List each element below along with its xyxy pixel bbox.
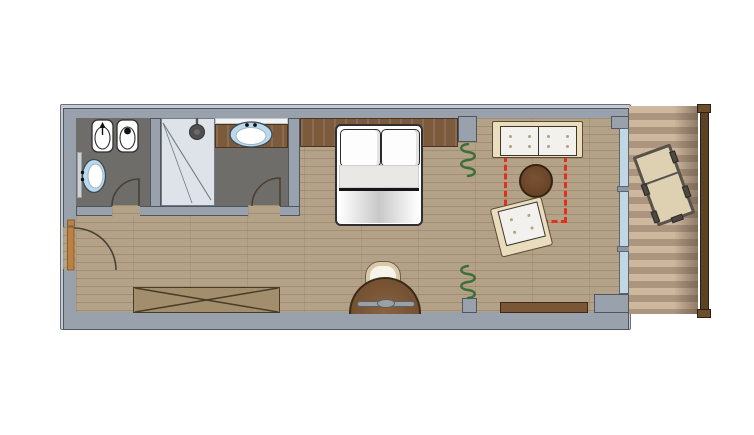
wall-corner-bottom-right [594, 294, 629, 313]
shower-cabin [161, 118, 215, 206]
coffee-table [519, 164, 553, 198]
sofa-cushion-right [538, 126, 577, 156]
vanity-counter [215, 124, 288, 148]
armchair-cushion [497, 201, 545, 246]
lounger-backrest-line [645, 172, 678, 186]
railing-post-top [697, 104, 711, 113]
wc-mirror [77, 152, 82, 198]
railing-post-bottom [697, 309, 711, 318]
pillow-right [381, 129, 420, 167]
wc-door-opening [112, 205, 140, 217]
pillow-left [340, 129, 381, 167]
wc-floor [76, 118, 150, 206]
duvet-left [339, 191, 379, 223]
sideboard-bench [500, 302, 588, 313]
bathroom-door-opening [248, 205, 280, 217]
sofa-cushion-left [500, 126, 539, 156]
wall-wc-bathroom [150, 118, 161, 216]
wall-pillar-bottom [462, 298, 477, 313]
desk-tray-knob [377, 299, 395, 308]
glass-facade [619, 128, 629, 294]
balcony-railing [700, 104, 709, 318]
wall-bathroom-bedroom [288, 118, 300, 216]
duvet-right [379, 191, 419, 223]
sofa [492, 121, 583, 158]
wardrobe [133, 287, 280, 313]
wall-pillar-bed [458, 116, 477, 142]
double-bed [335, 124, 423, 226]
bed-sheet [339, 165, 419, 188]
entrance-opening [63, 227, 76, 269]
floor-plan [0, 0, 754, 435]
